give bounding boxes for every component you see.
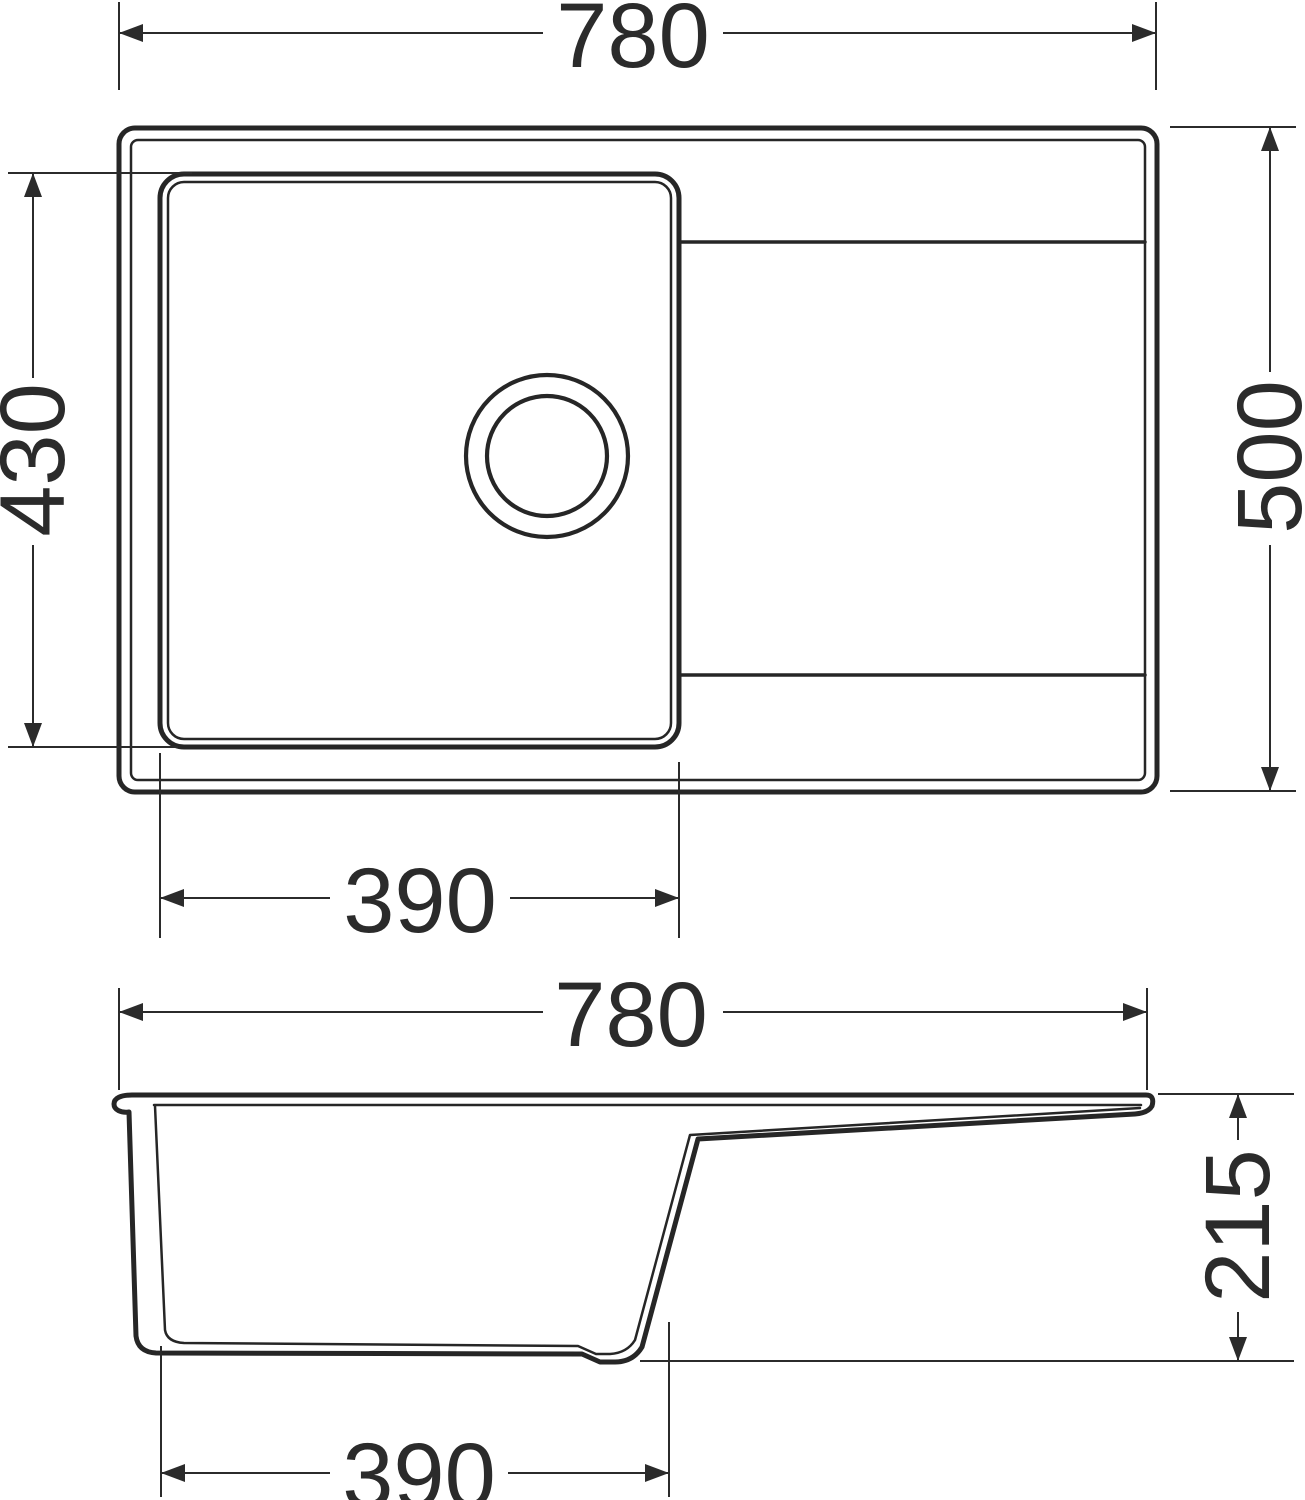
arrow-right-icon xyxy=(655,889,679,907)
arrow-down-icon xyxy=(24,723,42,747)
arrow-right-icon xyxy=(1123,1003,1147,1021)
sink-technical-drawing: 780 430 500 xyxy=(0,0,1305,1500)
dimension-label: 390 xyxy=(342,1425,496,1500)
arrow-left-icon xyxy=(161,1464,185,1482)
arrow-up-icon xyxy=(1261,127,1279,151)
dimension-side-bowl-width: 390 xyxy=(161,1322,669,1500)
dimension-label: 500 xyxy=(1219,380,1305,534)
dimension-top-bowl-width: 390 xyxy=(160,753,679,952)
dimension-bowl-front-to-back: 430 xyxy=(0,173,192,747)
bowl-outer-outline xyxy=(160,174,679,747)
dimension-top-depth: 500 xyxy=(1170,127,1305,791)
top-view: 780 430 500 xyxy=(0,0,1305,952)
dimension-side-height: 215 xyxy=(640,1094,1294,1361)
arrow-left-icon xyxy=(119,24,143,42)
dimension-top-width: 780 xyxy=(119,0,1156,90)
dimension-side-width: 780 xyxy=(119,964,1147,1090)
bowl-inner-line xyxy=(168,182,671,739)
arrow-down-icon xyxy=(1229,1337,1247,1361)
arrow-up-icon xyxy=(24,173,42,197)
sink-rim-line xyxy=(131,140,1145,780)
dimension-label: 390 xyxy=(343,850,497,952)
section-inner-bowl-line xyxy=(155,1106,1140,1354)
arrow-down-icon xyxy=(1261,767,1279,791)
sink-outer-outline xyxy=(119,128,1157,792)
drain-inner-circle xyxy=(487,396,607,516)
dimension-label: 430 xyxy=(0,383,84,537)
drain-outer-circle xyxy=(466,375,628,537)
section-outer-outline xyxy=(114,1095,1153,1362)
dimension-label: 780 xyxy=(554,964,708,1066)
arrow-right-icon xyxy=(1132,24,1156,42)
arrow-left-icon xyxy=(160,889,184,907)
arrow-up-icon xyxy=(1229,1094,1247,1118)
drawing-canvas: 780 430 500 xyxy=(0,0,1305,1500)
arrow-left-icon xyxy=(119,1003,143,1021)
side-view: 780 215 390 xyxy=(114,964,1294,1500)
dimension-label: 215 xyxy=(1187,1149,1289,1303)
dimension-label: 780 xyxy=(556,0,710,87)
arrow-right-icon xyxy=(645,1464,669,1482)
